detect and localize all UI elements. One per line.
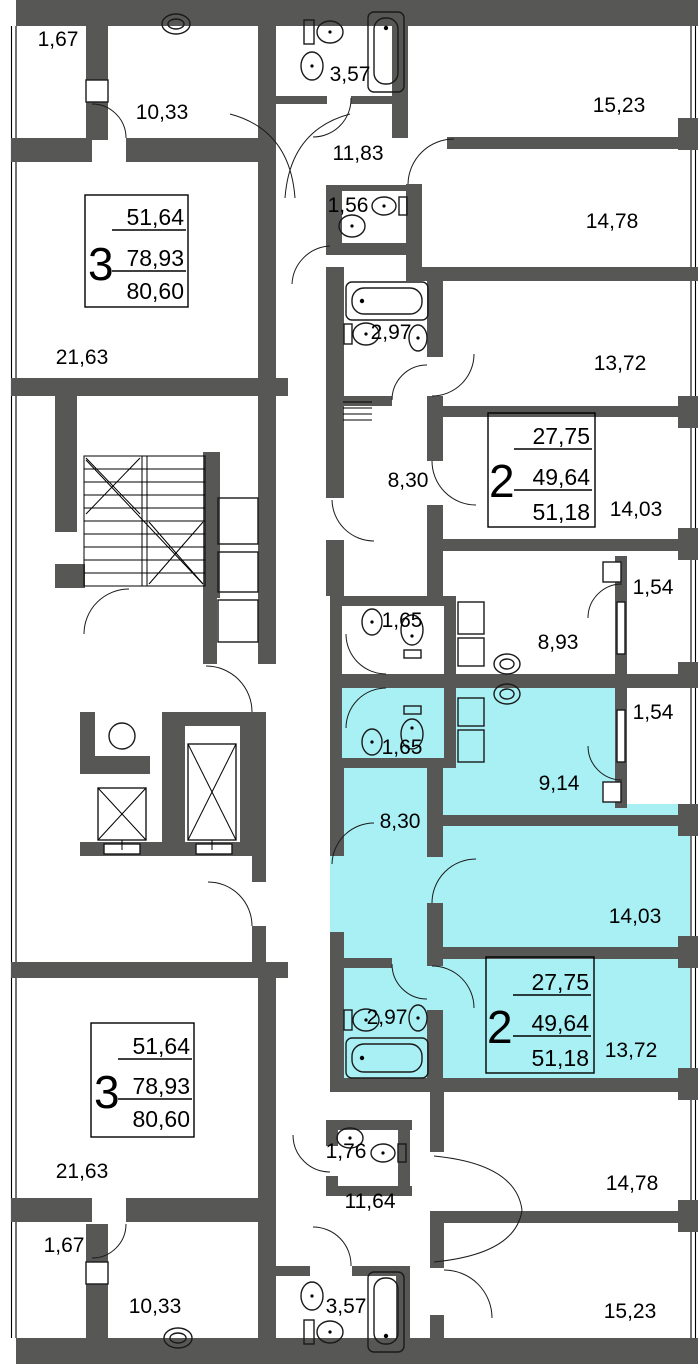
apt3-top-area: 78,93 (126, 245, 184, 271)
room-label-room2-top: 14,78 (586, 210, 639, 233)
room-label-hall-top: 11,83 (333, 142, 384, 165)
room-label-hall-bottom: 11,64 (345, 1190, 396, 1213)
apt3-top-rooms: 3 (88, 238, 114, 290)
apt3-bottom-area: 78,93 (132, 1073, 190, 1099)
apt2-top-rooms: 2 (489, 455, 515, 507)
garbage-chute-icon (109, 723, 135, 749)
room-label-bath2-top: 2,97 (371, 321, 412, 344)
room-label-room3-top: 13,72 (594, 352, 647, 375)
room-label-balcony-cyan: 1,54 (633, 701, 674, 724)
room-label-bath-cyan: 2,97 (367, 1006, 408, 1029)
elevator-large (188, 744, 236, 850)
apt3-bottom-living: 51,64 (132, 1033, 190, 1059)
room-label-bath-bottom: 3,57 (326, 1295, 367, 1318)
apartment-info-3-top[interactable]: 51,64 3 78,93 80,60 (85, 195, 188, 307)
elevator-small (98, 788, 146, 850)
room-label-living-bottom: 21,63 (56, 1160, 109, 1183)
room-label-wc-bottom: 1,76 (326, 1140, 367, 1163)
room-label-room4-top: 14,03 (610, 498, 663, 521)
floor-plan-canvas: 1,67 10,33 3,57 11,83 15,23 1,56 14,78 2… (0, 0, 698, 1364)
apt2-top-total: 51,18 (532, 499, 590, 525)
room-label-room2-cyan: 13,72 (605, 1039, 658, 1062)
room-label-balcony2-top: 1,54 (633, 576, 674, 599)
apt3-bottom-total: 80,60 (132, 1106, 190, 1132)
room-label-hall-cyan: 8,30 (380, 810, 421, 833)
room-label-wc-top: 1,56 (328, 194, 369, 217)
room-label-wc-cyan: 1,65 (382, 736, 423, 759)
room-label-balcony-top: 1,67 (38, 28, 79, 51)
room-label-kitchen-cyan: 9,14 (539, 772, 580, 795)
floor-plan: 1,67 10,33 3,57 11,83 15,23 1,56 14,78 2… (0, 0, 698, 1364)
apt2-top-area: 49,64 (532, 464, 590, 490)
apartment-info-2-top[interactable]: 27,75 2 49,64 51,18 (488, 413, 595, 527)
apt3-bottom-rooms: 3 (94, 1066, 120, 1118)
room-label-room2-bottom: 15,23 (604, 1300, 657, 1323)
room-label-balcony-bottom: 1,67 (44, 1234, 85, 1257)
apt2-bottom-rooms: 2 (487, 1001, 513, 1053)
room-label-living-top: 21,63 (56, 346, 109, 369)
staircase (84, 456, 205, 586)
room-label-bath-top: 3,57 (330, 63, 371, 86)
room-label-room1-top: 15,23 (593, 94, 646, 117)
room-label-room1-bottom: 14,78 (606, 1172, 659, 1195)
apt3-top-living: 51,64 (126, 204, 184, 230)
apt2-bottom-total: 51,18 (531, 1045, 589, 1071)
room-label-kitchen-top: 10,33 (136, 101, 189, 124)
apartment-info-3-bottom[interactable]: 51,64 3 78,93 80,60 (91, 1023, 194, 1137)
room-label-room1-cyan: 14,03 (609, 905, 662, 928)
apt2-bottom-area: 49,64 (531, 1010, 589, 1036)
apt3-top-total: 80,60 (126, 278, 184, 304)
room-label-wc2-top: 1,65 (382, 609, 423, 632)
apt2-top-living: 27,75 (532, 423, 590, 449)
apt2-bottom-living: 27,75 (531, 969, 589, 995)
room-label-hall2-top: 8,30 (388, 469, 429, 492)
room-label-kitchen-bottom: 10,33 (129, 1295, 182, 1318)
room-label-corridor-top: 8,93 (538, 631, 579, 654)
